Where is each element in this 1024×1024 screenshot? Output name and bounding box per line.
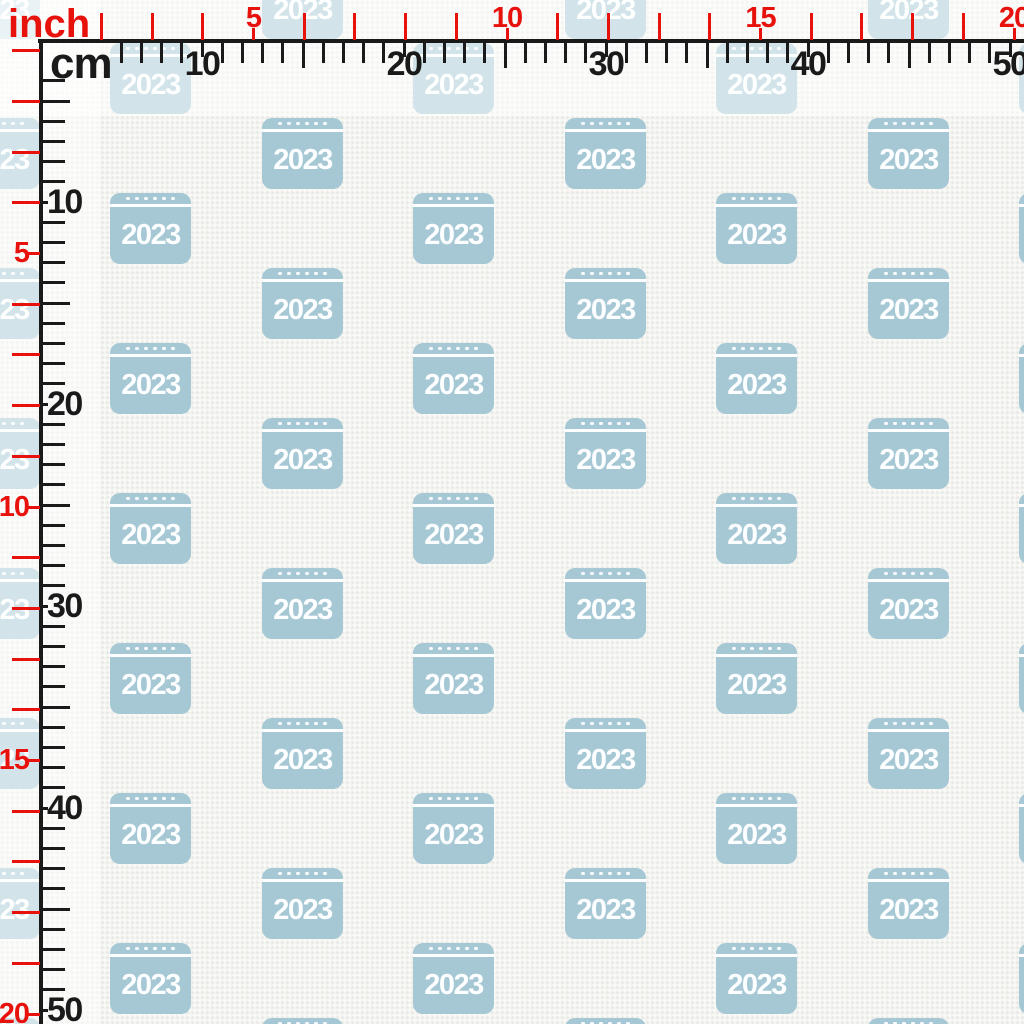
calendar-icon: 2023 (262, 568, 343, 639)
calendar-dot-icon (741, 797, 745, 801)
calendar-body: 2023 (413, 207, 494, 264)
calendar-dot-icon (759, 347, 763, 351)
calendar-binding-dots (262, 722, 343, 726)
calendar-dot-icon (305, 122, 309, 126)
calendar-icon: 2023 (110, 943, 191, 1014)
calendar-dot-icon (447, 347, 451, 351)
inch-tick-left (12, 353, 40, 356)
calendar-dot-icon (171, 497, 175, 501)
calendar-icon: 2023 (1019, 793, 1024, 864)
calendar-icon: 2023 (1019, 193, 1024, 264)
calendar-dot-icon (296, 272, 300, 276)
inch-tick-left (12, 201, 40, 204)
calendar-dot-icon (590, 272, 594, 276)
calendar-dot-icon (126, 347, 130, 351)
inch-tick-left (12, 49, 40, 52)
calendar-body: 2023 (262, 582, 343, 639)
calendar-dot-icon (617, 722, 621, 726)
calendar-dot-icon (474, 197, 478, 201)
calendar-dot-icon (626, 872, 630, 876)
calendar-dot-icon (617, 572, 621, 576)
calendar-binding-dots (565, 572, 646, 576)
calendar-icon: 2023 (868, 418, 949, 489)
calendar-dot-icon (296, 572, 300, 576)
calendar-dot-icon (777, 797, 781, 801)
cm-tick-top (322, 43, 325, 63)
calendar-dot-icon (287, 272, 291, 276)
calendar-dot-icon (902, 272, 906, 276)
calendar-year-label: 2023 (424, 521, 483, 550)
calendar-dot-icon (474, 347, 478, 351)
calendar-year-label: 2023 (576, 446, 635, 475)
calendar-dot-icon (287, 872, 291, 876)
calendar-dot-icon (581, 122, 585, 126)
calendar-dot-icon (884, 722, 888, 726)
calendar-dot-icon (171, 197, 175, 201)
cm-tick-top (281, 43, 284, 63)
calendar-dot-icon (456, 497, 460, 501)
fabric-pattern-preview: 2023202320232023202320232023202320232023… (0, 0, 1024, 1024)
cm-number-top: 10 (162, 47, 242, 81)
cm-tick-left (43, 524, 65, 527)
cm-tick-left (43, 160, 65, 163)
calendar-binding-dots (1019, 797, 1024, 801)
cm-tick-left (43, 443, 65, 446)
calendar-dot-icon (929, 722, 933, 726)
calendar-body: 2023 (110, 207, 191, 264)
calendar-dot-icon (314, 722, 318, 726)
calendar-icon: 2023 (413, 793, 494, 864)
calendar-icon: 2023 (868, 868, 949, 939)
calendar-binding-dots (868, 422, 949, 426)
calendar-dot-icon (153, 347, 157, 351)
calendar-dot-icon (920, 572, 924, 576)
calendar-dot-icon (599, 272, 603, 276)
calendar-dot-icon (626, 572, 630, 576)
calendar-icon: 2023 (413, 343, 494, 414)
calendar-body: 2023 (868, 432, 949, 489)
calendar-dot-icon (305, 872, 309, 876)
inch-tick-left (12, 658, 40, 661)
calendar-dot-icon (929, 122, 933, 126)
inch-tick-left (12, 404, 40, 407)
calendar-year-label: 2023 (576, 146, 635, 175)
calendar-dot-icon (135, 947, 139, 951)
calendar-dot-icon (305, 272, 309, 276)
calendar-dot-icon (323, 872, 327, 876)
calendar-dot-icon (429, 197, 433, 201)
calendar-dot-icon (171, 947, 175, 951)
calendar-year-label: 2023 (424, 671, 483, 700)
calendar-binding-dots (1019, 347, 1024, 351)
cm-number-top: 50 (970, 47, 1024, 81)
calendar-dot-icon (902, 572, 906, 576)
calendar-dot-icon (741, 197, 745, 201)
calendar-binding-dots (413, 797, 494, 801)
calendar-body: 2023 (1019, 357, 1024, 414)
calendar-dot-icon (323, 722, 327, 726)
calendar-dot-icon (296, 872, 300, 876)
calendar-binding-dots (868, 872, 949, 876)
calendar-dot-icon (893, 722, 897, 726)
calendar-dot-icon (323, 272, 327, 276)
calendar-icon: 2023 (565, 118, 646, 189)
calendar-year-label: 2023 (273, 146, 332, 175)
calendar-body: 2023 (716, 207, 797, 264)
calendar-binding-dots (110, 797, 191, 801)
calendar-dot-icon (750, 947, 754, 951)
calendar-dot-icon (768, 347, 772, 351)
calendar-year-label: 2023 (424, 821, 483, 850)
calendar-body: 2023 (413, 357, 494, 414)
calendar-dot-icon (893, 872, 897, 876)
inch-number-top: 5 (214, 4, 294, 33)
calendar-dot-icon (929, 272, 933, 276)
calendar-binding-dots (110, 647, 191, 651)
calendar-dot-icon (126, 197, 130, 201)
calendar-dot-icon (305, 722, 309, 726)
calendar-binding-dots (1019, 497, 1024, 501)
cm-tick-left (43, 867, 65, 870)
calendar-dot-icon (902, 872, 906, 876)
calendar-dot-icon (902, 422, 906, 426)
calendar-binding-dots (565, 872, 646, 876)
cm-tick-top (342, 43, 345, 63)
cm-tick-left (43, 423, 65, 426)
cm-number-left: 40 (47, 793, 82, 823)
calendar-dot-icon (911, 872, 915, 876)
cm-tick-left (43, 322, 65, 325)
calendar-body: 2023 (868, 582, 949, 639)
cm-tick-left (43, 665, 65, 668)
calendar-dot-icon (893, 122, 897, 126)
calendar-dot-icon (314, 422, 318, 426)
cm-tick-left (43, 120, 65, 123)
calendar-dot-icon (162, 797, 166, 801)
calendar-dot-icon (732, 197, 736, 201)
calendar-icon: 2023 (413, 943, 494, 1014)
calendar-body: 2023 (110, 507, 191, 564)
calendar-body: 2023 (413, 957, 494, 1014)
calendar-icon: 2023 (1019, 343, 1024, 414)
calendar-body: 2023 (565, 882, 646, 939)
calendar-dot-icon (750, 647, 754, 651)
calendar-dot-icon (617, 272, 621, 276)
calendar-dot-icon (144, 497, 148, 501)
calendar-icon: 2023 (413, 193, 494, 264)
calendar-dot-icon (929, 872, 933, 876)
calendar-dot-icon (732, 947, 736, 951)
calendar-body: 2023 (110, 357, 191, 414)
calendar-dot-icon (893, 422, 897, 426)
inch-tick-top (658, 13, 661, 40)
calendar-year-label: 2023 (879, 596, 938, 625)
cm-tick-left (43, 544, 65, 547)
cm-tick-top (120, 43, 123, 63)
calendar-dot-icon (911, 122, 915, 126)
calendar-dot-icon (456, 947, 460, 951)
calendar-dot-icon (296, 422, 300, 426)
calendar-body: 2023 (413, 507, 494, 564)
cm-unit-label: cm (50, 42, 112, 86)
inch-tick-left (12, 911, 40, 914)
calendar-icon: 2023 (716, 643, 797, 714)
calendar-binding-dots (413, 197, 494, 201)
cm-tick-left (43, 766, 65, 769)
calendar-dot-icon (929, 572, 933, 576)
cm-number-left: 30 (47, 591, 82, 621)
cm-tick-top (746, 43, 749, 63)
inch-tick-left (28, 1013, 40, 1016)
calendar-year-label: 2023 (879, 296, 938, 325)
calendar-dot-icon (162, 497, 166, 501)
calendar-body: 2023 (413, 807, 494, 864)
calendar-dot-icon (777, 347, 781, 351)
cm-tick-left (43, 100, 70, 103)
calendar-icon: 2023 (262, 1018, 343, 1024)
calendar-dot-icon (162, 347, 166, 351)
inch-tick-left (12, 100, 40, 103)
calendar-body: 2023 (262, 732, 343, 789)
calendar-year-label: 2023 (727, 971, 786, 1000)
cm-tick-left (43, 968, 65, 971)
calendar-dot-icon (162, 197, 166, 201)
calendar-body: 2023 (262, 432, 343, 489)
cm-tick-left (43, 504, 70, 507)
calendar-year-label: 2023 (424, 221, 483, 250)
inch-tick-top (303, 13, 306, 40)
inch-tick-left (12, 151, 40, 154)
calendar-binding-dots (716, 947, 797, 951)
calendar-body: 2023 (262, 132, 343, 189)
inch-tick-top (353, 13, 356, 40)
calendar-dot-icon (581, 272, 585, 276)
calendar-binding-dots (868, 122, 949, 126)
calendar-icon: 2023 (1019, 643, 1024, 714)
calendar-dot-icon (920, 272, 924, 276)
calendar-dot-icon (920, 872, 924, 876)
calendar-binding-dots (565, 422, 646, 426)
calendar-dot-icon (465, 797, 469, 801)
calendar-dot-icon (144, 947, 148, 951)
calendar-binding-dots (1019, 197, 1024, 201)
calendar-dot-icon (608, 122, 612, 126)
calendar-binding-dots (716, 497, 797, 501)
calendar-dot-icon (429, 947, 433, 951)
calendar-dot-icon (171, 797, 175, 801)
calendar-dot-icon (135, 647, 139, 651)
calendar-binding-dots (565, 272, 646, 276)
calendar-icon: 2023 (868, 1018, 949, 1024)
calendar-binding-dots (110, 497, 191, 501)
calendar-dot-icon (599, 122, 603, 126)
cm-tick-top (706, 43, 709, 68)
calendar-dot-icon (732, 347, 736, 351)
calendar-binding-dots (413, 347, 494, 351)
cm-tick-left (43, 261, 65, 264)
cm-tick-left (43, 887, 65, 890)
calendar-dot-icon (438, 497, 442, 501)
cm-tick-left (43, 625, 65, 628)
calendar-dot-icon (314, 572, 318, 576)
cm-number-left: 20 (47, 389, 82, 419)
inch-number-left: 10 (0, 492, 29, 522)
calendar-dot-icon (759, 647, 763, 651)
calendar-dot-icon (447, 797, 451, 801)
calendar-dot-icon (581, 422, 585, 426)
calendar-icon: 2023 (262, 118, 343, 189)
inch-tick-top (708, 13, 711, 40)
cm-tick-top (887, 43, 890, 63)
calendar-dot-icon (296, 722, 300, 726)
calendar-icon: 2023 (262, 268, 343, 339)
calendar-year-label: 2023 (121, 371, 180, 400)
calendar-year-label: 2023 (576, 596, 635, 625)
calendar-dot-icon (768, 647, 772, 651)
calendar-dot-icon (759, 497, 763, 501)
calendar-dot-icon (465, 497, 469, 501)
cm-tick-left (43, 706, 70, 709)
inch-tick-top (455, 13, 458, 40)
cm-number-top: 30 (566, 47, 646, 81)
calendar-body: 2023 (868, 882, 949, 939)
calendar-dot-icon (474, 497, 478, 501)
calendar-body: 2023 (716, 357, 797, 414)
calendar-body: 2023 (565, 732, 646, 789)
inch-tick-top (962, 13, 965, 40)
calendar-binding-dots (110, 947, 191, 951)
inch-number-top: 20 (974, 4, 1024, 33)
calendar-icon: 2023 (262, 718, 343, 789)
calendar-dot-icon (732, 797, 736, 801)
calendar-dot-icon (768, 947, 772, 951)
calendar-dot-icon (884, 422, 888, 426)
inch-tick-top (810, 13, 813, 40)
cm-tick-left (43, 342, 65, 345)
calendar-icon: 2023 (110, 793, 191, 864)
inch-tick-left (28, 759, 40, 762)
calendar-body: 2023 (868, 732, 949, 789)
calendar-icon: 2023 (110, 193, 191, 264)
calendar-dot-icon (323, 122, 327, 126)
inch-tick-left (12, 708, 40, 711)
inch-tick-top (201, 13, 204, 40)
calendar-dot-icon (465, 347, 469, 351)
cm-tick-left (43, 847, 65, 850)
calendar-dot-icon (153, 647, 157, 651)
calendar-dot-icon (135, 797, 139, 801)
calendar-binding-dots (565, 722, 646, 726)
calendar-year-label: 2023 (121, 971, 180, 1000)
calendar-dot-icon (162, 947, 166, 951)
cm-tick-left (43, 362, 65, 365)
calendar-icon: 2023 (110, 643, 191, 714)
calendar-year-label: 2023 (879, 746, 938, 775)
calendar-dot-icon (750, 497, 754, 501)
calendar-dot-icon (750, 197, 754, 201)
calendar-binding-dots (110, 347, 191, 351)
calendar-dot-icon (920, 422, 924, 426)
calendar-icon: 2023 (262, 868, 343, 939)
calendar-icon: 2023 (716, 493, 797, 564)
inch-number-left: 20 (0, 999, 29, 1024)
calendar-body: 2023 (565, 432, 646, 489)
calendar-dot-icon (884, 572, 888, 576)
calendar-dot-icon (171, 347, 175, 351)
calendar-dot-icon (893, 272, 897, 276)
cm-tick-top (261, 43, 264, 63)
calendar-binding-dots (262, 872, 343, 876)
calendar-binding-dots (413, 497, 494, 501)
calendar-dot-icon (144, 797, 148, 801)
inch-number-top: 10 (467, 4, 547, 33)
cm-tick-left (43, 281, 65, 284)
calendar-binding-dots (413, 647, 494, 651)
calendar-dot-icon (920, 122, 924, 126)
calendar-icon: 2023 (565, 718, 646, 789)
calendar-dot-icon (278, 122, 282, 126)
calendar-dot-icon (135, 497, 139, 501)
calendar-body: 2023 (716, 807, 797, 864)
cm-tick-left (43, 483, 65, 486)
ruler-top-line (38, 39, 1024, 43)
cm-tick-top (504, 43, 507, 68)
calendar-binding-dots (868, 272, 949, 276)
cm-tick-top (524, 43, 527, 63)
inch-tick-left (12, 810, 40, 813)
inch-tick-top (860, 13, 863, 40)
calendar-icon: 2023 (413, 493, 494, 564)
inch-number-top: 15 (721, 4, 801, 33)
calendar-dot-icon (456, 647, 460, 651)
cm-tick-top (726, 43, 729, 63)
calendar-dot-icon (617, 122, 621, 126)
calendar-dot-icon (465, 947, 469, 951)
calendar-dot-icon (929, 422, 933, 426)
calendar-year-label: 2023 (727, 221, 786, 250)
inch-tick-left (12, 607, 40, 610)
calendar-body: 2023 (565, 582, 646, 639)
calendar-dot-icon (626, 422, 630, 426)
calendar-dot-icon (144, 197, 148, 201)
calendar-body: 2023 (716, 957, 797, 1014)
calendar-dot-icon (608, 722, 612, 726)
cm-tick-left (43, 726, 65, 729)
calendar-body: 2023 (1019, 507, 1024, 564)
calendar-dot-icon (144, 347, 148, 351)
calendar-year-label: 2023 (424, 371, 483, 400)
cm-number-top: 40 (768, 47, 848, 81)
calendar-dot-icon (590, 872, 594, 876)
calendar-year-label: 2023 (879, 896, 938, 925)
calendar-year-label: 2023 (727, 821, 786, 850)
calendar-dot-icon (323, 572, 327, 576)
calendar-dot-icon (135, 197, 139, 201)
calendar-dot-icon (314, 122, 318, 126)
calendar-dot-icon (741, 347, 745, 351)
cm-tick-top (140, 43, 143, 63)
calendar-dot-icon (608, 422, 612, 426)
cm-tick-left (43, 948, 65, 951)
calendar-dot-icon (447, 647, 451, 651)
calendar-icon: 2023 (262, 418, 343, 489)
calendar-dot-icon (447, 497, 451, 501)
calendar-dot-icon (750, 797, 754, 801)
calendar-binding-dots (716, 197, 797, 201)
calendar-dot-icon (741, 647, 745, 651)
calendar-body: 2023 (565, 282, 646, 339)
calendar-year-label: 2023 (273, 596, 332, 625)
